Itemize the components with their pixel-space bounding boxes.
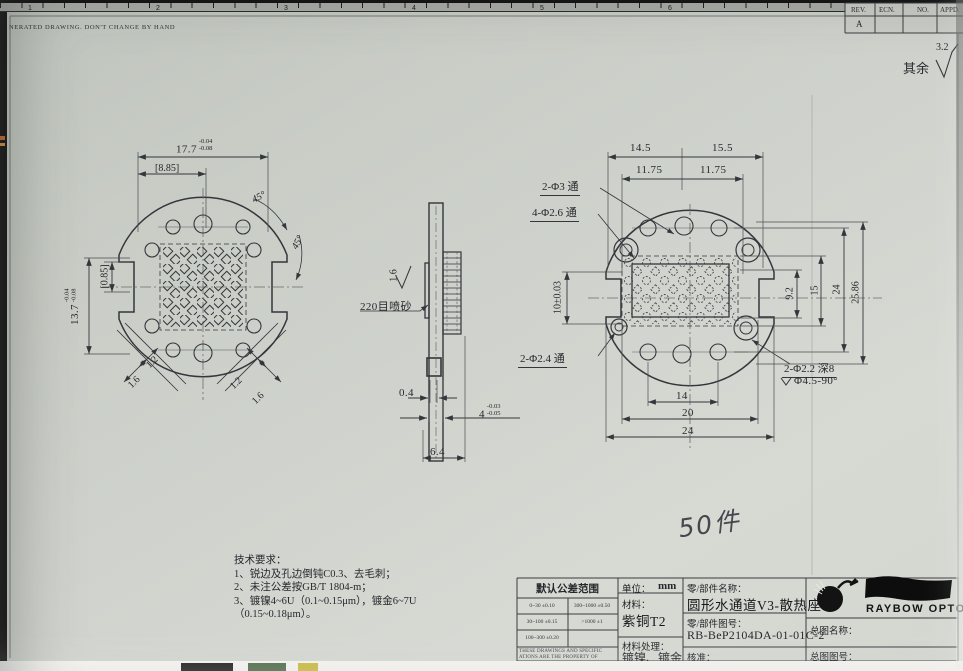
property-note-line: THESE DRAWINGS AND SPECIFIC: [519, 649, 602, 655]
tolerance-cell: 0~30 ±0.10: [518, 599, 566, 613]
surface-finish-prefix: 其余: [903, 58, 929, 77]
technical-requirements: 技术要求： 1、锐边及孔边倒钝C0.3、去毛刺； 2、未注公差按GB/T 180…: [234, 554, 417, 622]
thumbnail: [298, 663, 318, 671]
part-name-value: 圆形水通道V3-散热座: [687, 594, 822, 614]
dim-value: 13.7: [69, 304, 81, 325]
property-note-line: ATIONS ARE THE PROPERTY OF: [519, 655, 602, 661]
thumbnail: [248, 663, 286, 671]
tech-req-line: 3、镀镍4~6U（0.1~0.15μm），镀金6~7U: [234, 595, 417, 609]
no-header: NO.: [917, 6, 929, 14]
label-back-corner-holes: 4-Φ2.6 通: [530, 204, 579, 222]
dim-back-b3: 24: [682, 425, 694, 437]
scanned-drawing-photo: 1 2 3 4 5 6: [0, 0, 963, 671]
tech-req-line: （0.15~0.18μm）。: [234, 608, 417, 622]
material-label: 材料：: [622, 597, 651, 611]
bottom-film-strip: [0, 661, 963, 671]
dim-tolerance: -0.04-0.08: [199, 139, 213, 152]
surface-finish-value: 3.2: [936, 42, 949, 53]
tech-req-title: 技术要求：: [234, 554, 417, 568]
tech-req-line: 2、未注公差按GB/T 1804-m；: [234, 581, 417, 595]
unit-value: mm: [658, 580, 676, 592]
dim-back-mid-left: 11.75: [636, 164, 662, 176]
brand-name: RAYBOW OPTO: [866, 603, 963, 615]
dim-back-r2: 15: [810, 282, 821, 300]
tolerance-cell: 100~300 ±0.20: [518, 631, 566, 645]
dim-front-ref-width: [8.85]: [155, 163, 179, 174]
tolerance-cell: >1000 ±1: [568, 615, 616, 629]
dim-side-thickness: 4-0.03-0.05: [479, 407, 500, 421]
dim-back-pocket: 10±0.03: [553, 270, 564, 326]
tech-req-line: 1、锐边及孔边倒钝C0.3、去毛刺；: [234, 568, 417, 582]
dim-tolerance: -0.04-0.08: [64, 289, 77, 303]
dim-back-b2: 20: [682, 407, 694, 419]
label-sandblast: 220目喷砂: [360, 298, 412, 314]
tolerance-cell: [568, 631, 616, 645]
sheet-frame: [10, 16, 958, 658]
property-note: THESE DRAWINGS AND SPECIFIC ATIONS ARE T…: [519, 649, 602, 661]
thumbnail: [181, 663, 233, 671]
tolerance-header: 默认公差范围: [519, 580, 616, 596]
dim-value: 17.7: [176, 144, 197, 156]
dim-value: 4: [479, 409, 485, 421]
dim-back-r3: 24: [832, 281, 843, 299]
dim-back-top-left: 14.5: [630, 142, 651, 154]
dim-side-roughness: 1.6: [389, 266, 400, 286]
side-view: [360, 203, 520, 462]
front-view: [84, 152, 305, 400]
assembly-name-label: 总图名称：: [810, 623, 858, 637]
dim-back-top-right: 15.5: [712, 142, 733, 154]
rev-value: A: [856, 19, 863, 29]
dim-front-ref-offset: [0.85]: [100, 257, 111, 297]
rev-header: REV.: [851, 6, 866, 14]
tolerance-cell: 30~100 ±0.15: [518, 615, 566, 629]
photo-right-edge: [956, 0, 963, 671]
dim-tolerance: -0.03-0.05: [487, 404, 501, 417]
dim-back-r1: 9.2: [785, 282, 796, 306]
dim-side-total: 6.4: [430, 446, 445, 458]
dim-back-mid-right: 11.75: [700, 164, 726, 176]
part-name-label: 零/部件名称：: [687, 581, 747, 595]
dim-front-height: 13.7-0.04-0.08: [67, 275, 81, 339]
top-margin-note: NERATED DRAWING. DON'T CHANGE BY HAND: [9, 24, 175, 31]
label-back-csink: Φ4.5-90°: [794, 375, 838, 387]
dim-front-width: 17.7-0.04-0.08: [176, 142, 212, 156]
unit-label: 单位：: [622, 581, 651, 595]
ecn-header: ECN.: [879, 6, 895, 14]
tolerance-cell: 300~1000 ±0.50: [568, 599, 616, 613]
label-back-side-holes: 2-Φ2.4 通: [518, 350, 567, 368]
dim-side-fin-pitch: 0.4: [399, 387, 414, 399]
drawing-linework: [0, 0, 963, 671]
dim-back-r4: 25.86: [851, 273, 862, 313]
dim-back-b1: 14: [676, 390, 688, 402]
material-value: 紫铜T2: [622, 610, 666, 630]
part-no-value: RB-BeP2104DA-01-01C-2: [687, 628, 825, 643]
label-back-top-holes: 2-Φ3 通: [540, 178, 580, 196]
